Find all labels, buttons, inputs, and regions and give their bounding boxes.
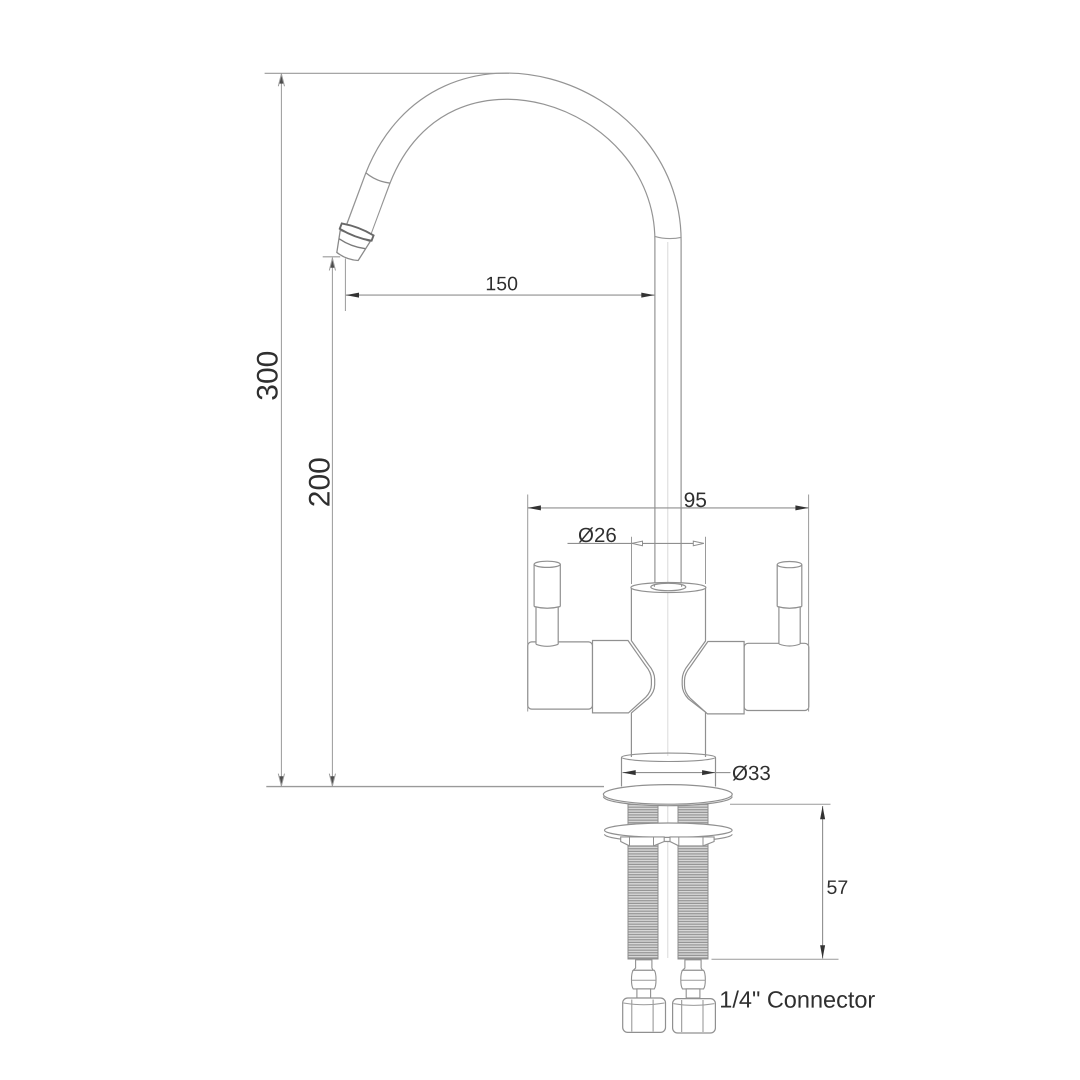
svg-text:Ø26: Ø26	[578, 524, 617, 547]
svg-text:1/4" Connector: 1/4" Connector	[719, 987, 875, 1013]
svg-text:200: 200	[304, 457, 337, 507]
svg-text:150: 150	[485, 273, 518, 295]
svg-text:300: 300	[252, 351, 285, 401]
svg-text:57: 57	[826, 877, 848, 899]
svg-text:Ø33: Ø33	[732, 762, 771, 785]
svg-text:95: 95	[684, 489, 707, 512]
